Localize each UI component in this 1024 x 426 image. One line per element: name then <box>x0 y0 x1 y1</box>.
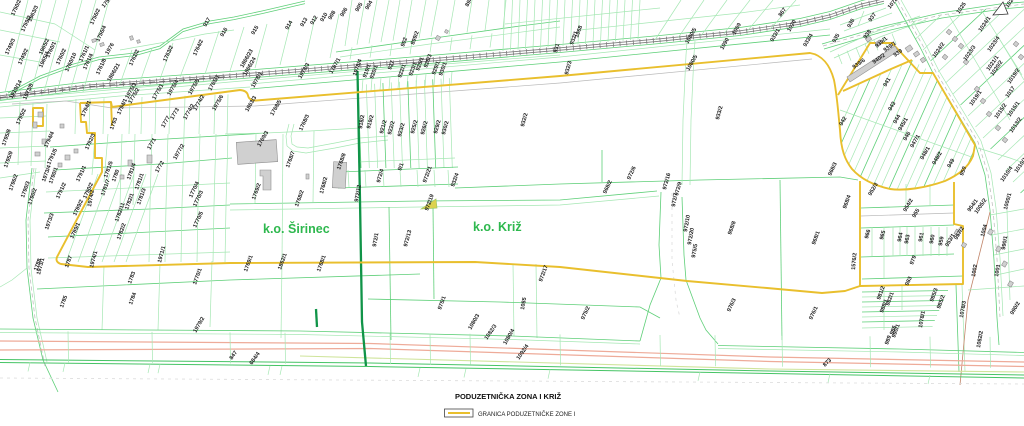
svg-text:GRANICA PODUZETNIČKE ZONE I: GRANICA PODUZETNIČKE ZONE I <box>478 411 576 418</box>
svg-text:PODUZETNIČKA ZONA I KRIŽ: PODUZETNIČKA ZONA I KRIŽ <box>455 392 562 401</box>
svg-text:k.o. Širinec: k.o. Širinec <box>263 221 330 236</box>
svg-text:k.o. Križ: k.o. Križ <box>473 220 522 234</box>
